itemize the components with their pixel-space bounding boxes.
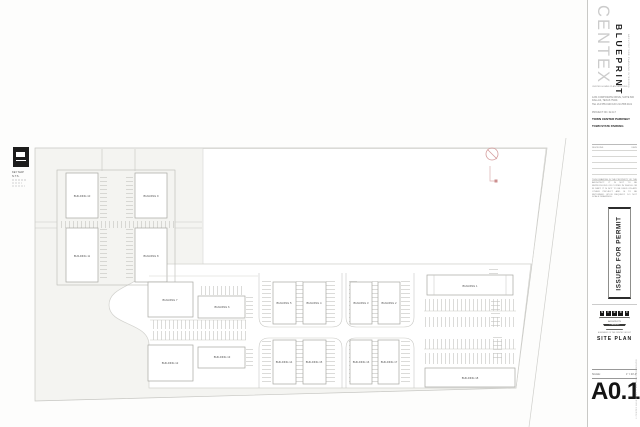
firm-logo-mark-icon: ARCHITECTS PLANNERS [599,317,630,330]
firm-logo-band: PLANNERS [600,324,629,326]
title-block: CENTEX BLUEPRINT ARCHITECTURE PLANNING I… [587,0,640,427]
revision-header-right: DATE [632,147,637,149]
project-name: TOWN CENTER PARKWAY [592,117,630,121]
building-12-label: BUILDING 12 [162,361,179,365]
future-pad-area [203,149,546,264]
building-6-label: BUILDING 6 [215,305,230,309]
scale-label: SCALE: [592,373,601,376]
building-8-label: BUILDING 8 [144,254,159,258]
project-number: PROJECT NO. 02-117 [592,111,616,114]
parking-ticks [401,341,410,383]
parking-ticks [372,341,378,383]
brand-tagline: ARCHITECTURE PLANNING INTERIORS [625,30,631,92]
building-14-label: BUILDING 14 [276,360,293,364]
parking-ticks [424,353,516,364]
key-map-scale: N.T.S. [12,174,20,178]
brand-blueprint: BLUEPRINT [613,18,625,102]
building-16-label: BUILDING 16 [353,360,370,364]
firm-logo-tagline: A MEMBER OF THE CENTEX GROUP [592,332,637,334]
building-5-label: BUILDING 5 [277,301,292,305]
disclaimer-note: THIS DRAWING IS THE PROPERTY OF THE ARCH… [592,179,637,199]
building-1-label: BUILDING 1 [463,284,478,288]
building-7-label: BUILDING 7 [163,298,178,302]
divider [592,304,637,305]
building-11-label: BUILDING 11 [74,254,91,258]
revision-table: REVISIONS DATE [592,144,637,181]
building-3-label: BUILDING 3 [354,301,369,305]
logo-letter-icon: C [606,311,611,316]
parking-ticks [424,317,516,327]
building-2-label: BUILDING 2 [382,301,397,305]
logo-letter-icon: D [618,311,623,316]
parking-ticks [493,334,502,360]
logo-letter-icon: B [612,311,617,316]
parking-ticks [100,174,107,218]
parking-ticks [424,339,516,349]
status-stamp: ISSUED FOR PERMIT [608,207,631,299]
firm-logo: N C B D C ARCHITECTS PLANNERS A MEMBER O… [592,311,637,342]
project-name-2: TOWN STATE PARKING [592,124,624,128]
parking-ticks [100,229,107,281]
sheet-title: SITE PLAN [592,336,637,342]
parking-ticks [326,341,335,383]
parking-ticks [296,341,303,383]
building-9-label: BUILDING 9 [144,194,159,198]
parking-ticks [126,229,133,281]
firm-address-line: TEL 214.555.0100 FAX 214.555.0101 [592,103,634,106]
building-17-label: BUILDING 17 [381,360,398,364]
building-15-label: BUILDING 15 [306,360,323,364]
parking-ticks [246,297,253,318]
parking-ticks [424,299,516,311]
building-13-label: BUILDING 13 [214,355,231,359]
parking-ticks [262,341,271,383]
firm-logo-letters: N C B D C [592,311,637,316]
building-10-label: BUILDING 10 [74,194,91,198]
firm-address: 1234 CORPORATE DRIVE, SUITE 600 DALLAS, … [592,96,634,106]
key-map-icon [13,147,29,167]
logo-letter-icon: C [625,311,630,316]
parking-ticks [326,281,335,323]
parking-ticks [246,347,253,367]
key-map-caption: KEY MAP [12,170,24,174]
brand-division: CENTEX HOMES PLAN SERVICES [592,86,627,88]
parking-ticks [401,281,410,323]
site-plan-drawing: BUILDING 10 BUILDING 9 BUILDING 11 BUILD… [0,0,640,427]
parking-ticks [150,320,246,329]
parking-ticks [198,286,245,295]
parking-ticks [126,174,133,218]
parking-ticks [150,331,246,340]
building-18-label: BUILDING 18 [462,376,479,380]
status-stamp-label: ISSUED FOR PERMIT [616,216,623,290]
building-4-label: BUILDING 4 [307,301,322,305]
parking-ticks [296,281,303,323]
brand-centex: CENTEX [591,8,613,80]
copyright-note: © CENTEX BLUEPRINT — ALL RIGHTS RESERVED [633,355,640,423]
parking-ticks [58,221,174,228]
revision-header-left: REVISIONS [592,147,603,149]
logo-letter-icon: N [600,311,605,316]
parking-ticks [491,300,500,328]
drawing-sheet: BUILDING 10 BUILDING 9 BUILDING 11 BUILD… [0,0,640,427]
parking-ticks [372,281,378,323]
parking-ticks [262,281,271,323]
